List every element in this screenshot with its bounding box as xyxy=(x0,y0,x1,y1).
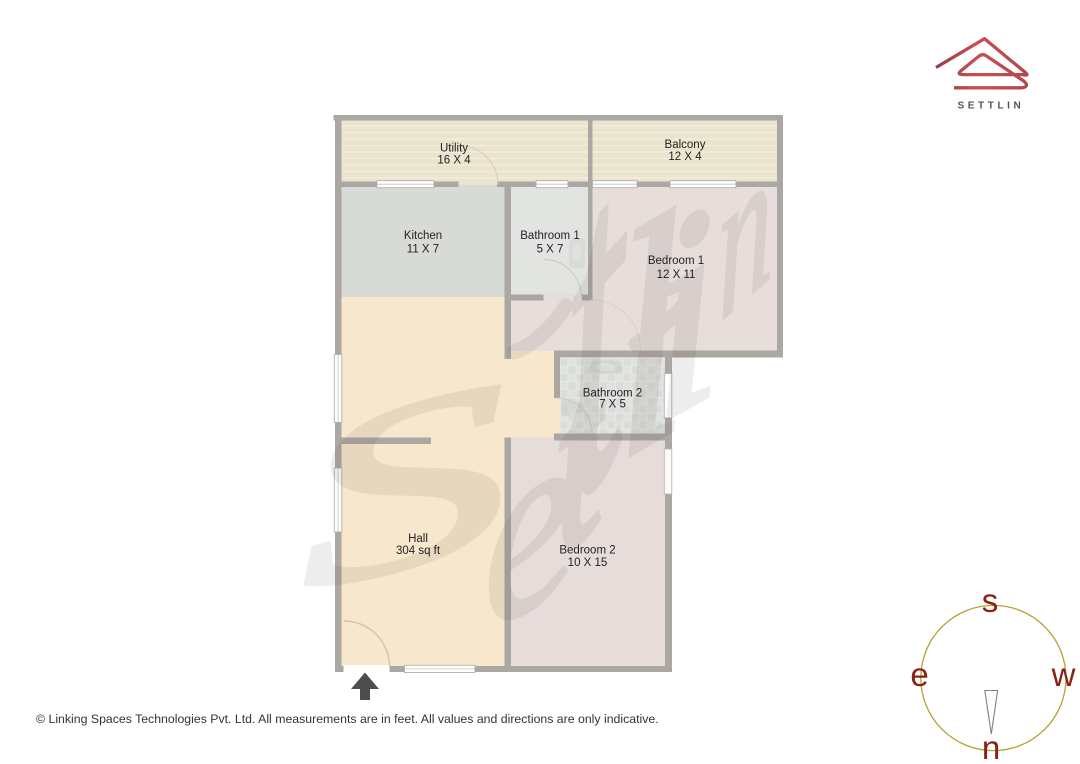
svg-text:n: n xyxy=(715,101,775,365)
svg-text:n: n xyxy=(982,729,1000,764)
svg-text:e: e xyxy=(910,656,928,693)
svg-text:w: w xyxy=(1051,656,1076,693)
svg-text:SETTLIN: SETTLIN xyxy=(958,101,1025,112)
svg-text:s: s xyxy=(982,582,999,619)
svg-text:Kitchen11 X 7: Kitchen11 X 7 xyxy=(404,230,442,256)
svg-text:Utility16 X 4: Utility16 X 4 xyxy=(437,143,471,167)
svg-text:Bedroom 210 X 15: Bedroom 210 X 15 xyxy=(559,545,615,570)
svg-text:© Linking Spaces Technologies: © Linking Spaces Technologies Pvt. Ltd. … xyxy=(36,712,659,726)
svg-text:Balcony12 X 4: Balcony12 X 4 xyxy=(665,139,706,163)
